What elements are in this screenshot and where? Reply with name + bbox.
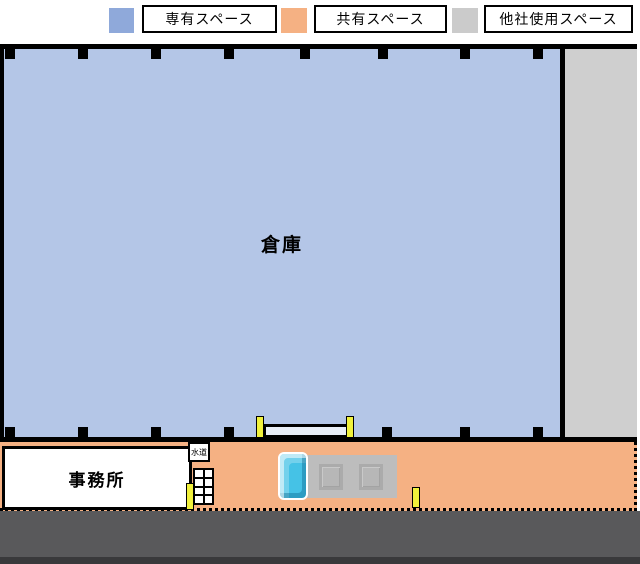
pillar <box>300 49 310 59</box>
water-supply-label: 水道 <box>191 447 207 458</box>
other-company-area <box>565 49 637 437</box>
road <box>0 511 640 557</box>
pillar <box>78 427 88 437</box>
pillar <box>78 49 88 59</box>
wall-right-divider <box>560 44 565 442</box>
gate-shutter <box>263 424 349 438</box>
legend-text-exclusive: 専有スペース <box>165 9 253 29</box>
pillar <box>460 49 470 59</box>
pillar <box>5 49 15 59</box>
warehouse-area: 倉庫 <box>4 49 560 437</box>
legend-swatch-exclusive <box>109 8 134 33</box>
wall-left <box>0 44 4 442</box>
truck-cab <box>278 452 308 500</box>
legend-swatch-other <box>452 8 478 33</box>
pillar <box>533 49 543 59</box>
pillar <box>151 49 161 59</box>
gate-post-right <box>346 416 354 438</box>
legend-text-other: 他社使用スペース <box>499 9 617 29</box>
stairs-grid <box>193 468 214 505</box>
road-edge <box>0 557 640 564</box>
pillar <box>224 427 234 437</box>
truck-bed-hatch <box>319 464 343 490</box>
pillar <box>382 427 392 437</box>
truck-bed <box>307 455 397 498</box>
floor-plan: 専有スペース 共有スペース 他社使用スペース 倉庫 事務所 水道 <box>0 0 640 564</box>
safety-post <box>186 483 194 510</box>
truck-bed-hatch <box>359 464 383 490</box>
pillar <box>378 49 388 59</box>
safety-post <box>412 487 420 508</box>
legend-text-shared: 共有スペース <box>336 9 424 29</box>
office-box: 事務所 <box>2 446 192 510</box>
pillar <box>5 427 15 437</box>
legend-swatch-shared <box>281 8 307 33</box>
pillar <box>460 427 470 437</box>
water-supply-box: 水道 <box>188 442 210 462</box>
pillar <box>151 427 161 437</box>
legend-label-exclusive: 専有スペース <box>142 5 277 33</box>
legend-label-shared: 共有スペース <box>314 5 447 33</box>
warehouse-label: 倉庫 <box>261 230 303 257</box>
office-label: 事務所 <box>69 466 126 491</box>
pillar <box>533 427 543 437</box>
legend-label-other: 他社使用スペース <box>484 5 633 33</box>
gate-post-left <box>256 416 264 438</box>
pillar <box>224 49 234 59</box>
